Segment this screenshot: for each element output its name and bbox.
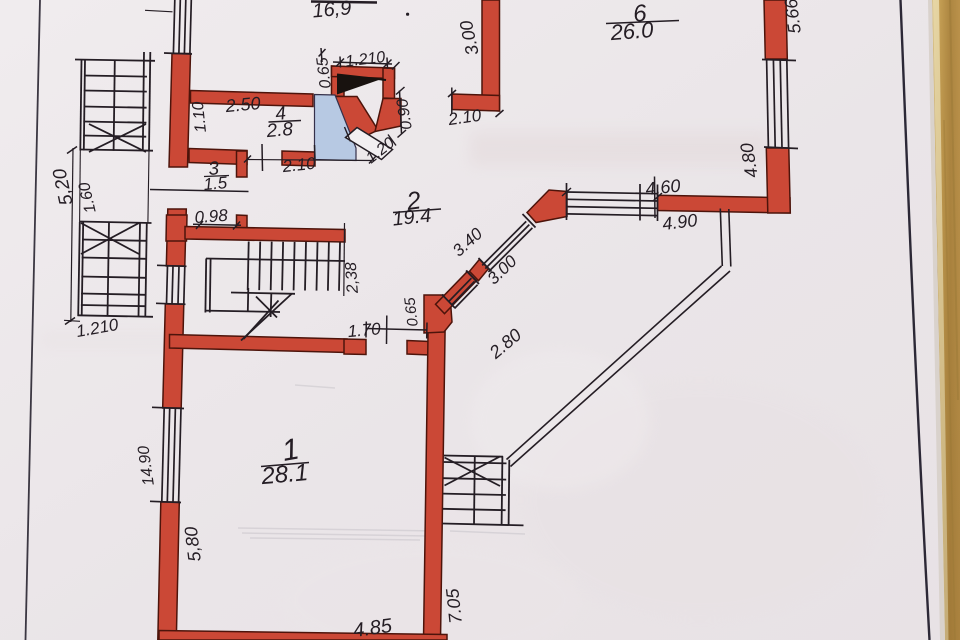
svg-text:5,80: 5,80 (181, 526, 205, 563)
svg-text:0.98: 0.98 (194, 206, 229, 227)
svg-text:5.66: 5.66 (781, 0, 805, 35)
svg-text:2.10: 2.10 (281, 154, 317, 177)
svg-text:1.70: 1.70 (347, 319, 382, 341)
svg-text:0.65: 0.65 (401, 296, 422, 328)
svg-text:16,9: 16,9 (312, 0, 353, 22)
svg-text:2,38: 2,38 (343, 261, 362, 294)
svg-text:1.5: 1.5 (203, 173, 229, 194)
svg-text:26.0: 26.0 (609, 17, 655, 45)
svg-text:4.90: 4.90 (661, 210, 698, 234)
svg-text:2.50: 2.50 (224, 93, 262, 116)
svg-text:4.60: 4.60 (644, 176, 681, 200)
svg-text:4.85: 4.85 (352, 615, 394, 640)
svg-text:19.4: 19.4 (391, 205, 432, 231)
svg-text:2.8: 2.8 (265, 119, 295, 142)
svg-text:1.10: 1.10 (190, 101, 210, 134)
svg-text:28.1: 28.1 (259, 459, 309, 490)
svg-text:7.05: 7.05 (442, 587, 466, 625)
